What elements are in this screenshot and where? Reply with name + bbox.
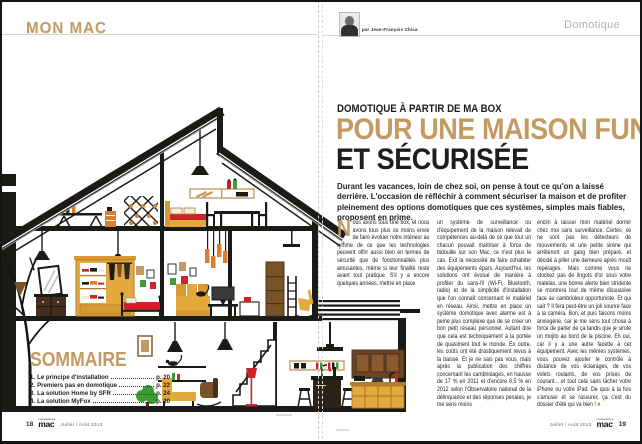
category-label: Domotique <box>470 19 620 31</box>
attic-bed <box>165 201 208 227</box>
footer-date: Juillet / Août 2013 <box>550 422 592 428</box>
left-page-footer: 18 compétence mac Juillet / Août 2013 <box>26 418 102 428</box>
author-shoulders <box>341 25 358 36</box>
orange-pendant-cluster <box>205 231 228 268</box>
author-photo <box>339 12 360 37</box>
article-intro: Durant les vacances, loin de chez soi, o… <box>337 181 637 222</box>
tall-brown-cabinet <box>266 262 284 316</box>
right-header-rule <box>323 35 640 36</box>
end-mark: ■ <box>597 402 600 408</box>
pendant-cone-lamp <box>217 322 233 350</box>
leader-dots <box>111 378 154 379</box>
item-page: p. 22 <box>156 382 170 390</box>
sommaire-item[interactable]: 4. La solution MyFox p. 30 <box>30 398 170 406</box>
kitchen-slatted-roof <box>316 300 420 320</box>
tv-and-bench <box>208 287 238 316</box>
flat-pendant-lamp <box>283 231 300 247</box>
item-number: 1. <box>30 374 35 382</box>
frame-top <box>0 0 642 2</box>
item-page: p. 30 <box>156 398 170 406</box>
leader-dots <box>119 386 154 387</box>
bedroom-furniture <box>34 231 317 317</box>
article-title-line2: ET SÉCURISÉE <box>336 144 529 176</box>
sommaire-item[interactable]: 3. La solution Home by SFR p. 24 <box>30 390 170 398</box>
byline: par Jean-François Chica <box>362 27 418 32</box>
page-number: 18 <box>26 421 33 428</box>
wall-shelf <box>190 179 254 199</box>
item-page: p. 20 <box>156 374 170 382</box>
ladder <box>288 276 296 316</box>
sommaire-item[interactable]: 1. Le principe d'installation p. 20 <box>30 374 170 382</box>
column-text: un système de surveillance ou d'équipeme… <box>437 219 531 408</box>
chimney <box>0 174 16 412</box>
credit-mark <box>276 414 292 416</box>
cat <box>196 291 206 296</box>
kitchen-furniture <box>290 322 406 408</box>
body-column-3: enclin à laisser mon matériel dormir che… <box>537 219 631 415</box>
item-label: La solution Home by SFR <box>37 390 111 398</box>
sommaire-title: SOMMAIRE <box>30 349 158 371</box>
leader-dots <box>113 394 154 395</box>
kitchen-island <box>311 365 343 408</box>
article-title-line1: POUR UNE MAISON FUN <box>336 114 642 146</box>
page-gutter-dashes <box>322 0 323 444</box>
item-number: 4. <box>30 398 35 406</box>
drop-cap: N <box>337 219 353 237</box>
item-page: p. 24 <box>156 390 170 398</box>
item-label: La solution MyFox <box>37 398 91 406</box>
attic-dining-set <box>206 202 267 227</box>
sommaire-item[interactable]: 2. Premiers pas en domotique p. 22 <box>30 382 170 390</box>
frame-left <box>0 0 2 444</box>
logo-bottom: mac <box>38 421 55 428</box>
sommaire-block: SOMMAIRE 1. Le principe d'installation p… <box>30 349 176 406</box>
page-gutter-dashes <box>318 0 319 444</box>
footer-date: Juillet / Août 2013 <box>60 422 102 428</box>
body-column-1: Nous avons tous une box, et nous avons t… <box>337 219 429 297</box>
dark-dresser <box>34 294 68 316</box>
pendant-cone-lamp <box>167 322 183 352</box>
item-label: Premiers pas en domotique <box>37 382 117 390</box>
right-page-footer: Juillet / Août 2013 compétence mac 19 <box>546 418 626 428</box>
rocking-armchair <box>197 378 221 406</box>
page-number: 19 <box>619 421 626 428</box>
section-label-reflection: MON MAC <box>26 27 107 36</box>
item-number: 3. <box>30 390 35 398</box>
credit-mark <box>336 429 349 431</box>
leaning-mirror <box>38 266 61 296</box>
white-console <box>240 297 259 316</box>
orange-drawer-cabinet <box>105 207 116 227</box>
kitchen-pendant-lamp <box>317 322 343 351</box>
body-column-2: un système de surveillance ou d'équipeme… <box>437 219 531 415</box>
leader-dots <box>93 402 155 403</box>
logo-bottom: mac <box>597 421 614 428</box>
magazine-logo: compétence mac <box>597 418 614 428</box>
modular-sofa <box>176 284 210 316</box>
magazine-spread: MON MAC MON MAC SOMMAIRE 1. Le principe … <box>0 0 642 444</box>
item-label: Le principe d'installation <box>37 374 109 382</box>
item-number: 2. <box>30 382 35 390</box>
bar-stool <box>298 388 311 407</box>
magazine-logo: compétence mac <box>38 418 55 428</box>
column-text: enclin à laisser mon matériel dormir che… <box>537 219 631 408</box>
